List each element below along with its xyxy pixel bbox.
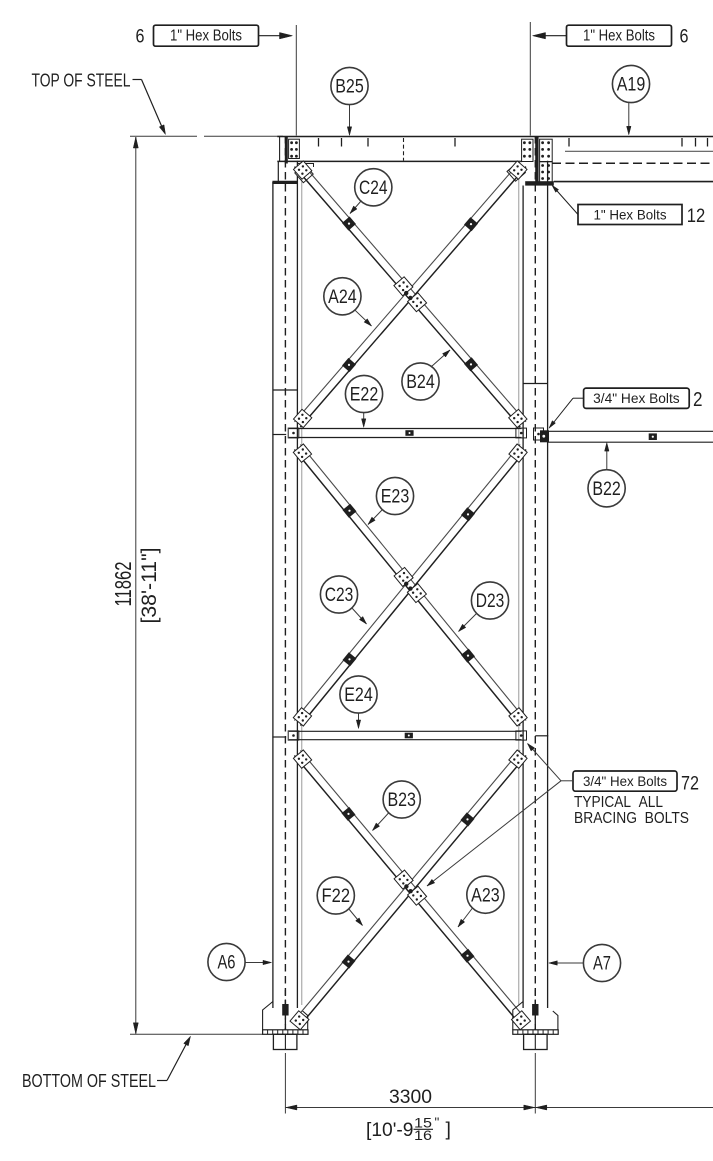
svg-text:E22: E22 [350,385,379,406]
svg-text:E24: E24 [344,685,373,706]
svg-text:1" Hex Bolts: 1" Hex Bolts [170,28,242,45]
svg-text:12: 12 [687,205,706,227]
svg-text:": " [435,1115,440,1130]
svg-text:B25: B25 [335,77,364,98]
svg-text:A24: A24 [328,287,357,308]
svg-text:A6: A6 [218,953,236,974]
svg-text:[10'-9: [10'-9 [366,1119,414,1141]
svg-text:72: 72 [681,773,699,795]
svg-text:B23: B23 [387,790,416,811]
svg-text:C23: C23 [325,585,354,606]
svg-text:F22: F22 [322,886,351,907]
svg-text:A19: A19 [617,75,646,96]
svg-text:3300: 3300 [389,1087,432,1108]
svg-text:3/4" Hex Bolts: 3/4" Hex Bolts [583,773,667,789]
svg-text:C24: C24 [359,178,388,199]
svg-text:6: 6 [680,26,689,48]
svg-text:3/4" Hex Bolts: 3/4" Hex Bolts [593,390,680,406]
svg-text:TOP OF STEEL: TOP OF STEEL [32,71,131,91]
svg-text:]: ] [446,1119,451,1141]
svg-text:B22: B22 [592,479,621,500]
svg-text:TYPICAL ALL: TYPICAL ALL [574,794,663,811]
svg-text:BRACING BOLTS: BRACING BOLTS [574,810,689,827]
svg-text:6: 6 [136,25,145,47]
svg-text:[38'-11"]: [38'-11"] [138,548,161,624]
svg-text:11862: 11862 [110,562,136,607]
svg-text:E23: E23 [381,487,410,508]
svg-text:1" Hex Bolts: 1" Hex Bolts [583,28,655,45]
svg-text:B24: B24 [406,372,435,393]
svg-text:BOTTOM OF STEEL: BOTTOM OF STEEL [22,1070,156,1091]
svg-text:2: 2 [693,389,703,411]
svg-text:16: 16 [414,1128,432,1143]
svg-text:D23: D23 [476,591,505,612]
svg-text:A23: A23 [471,885,500,906]
svg-text:A7: A7 [593,954,611,975]
svg-text:1" Hex Bolts: 1" Hex Bolts [594,206,667,222]
